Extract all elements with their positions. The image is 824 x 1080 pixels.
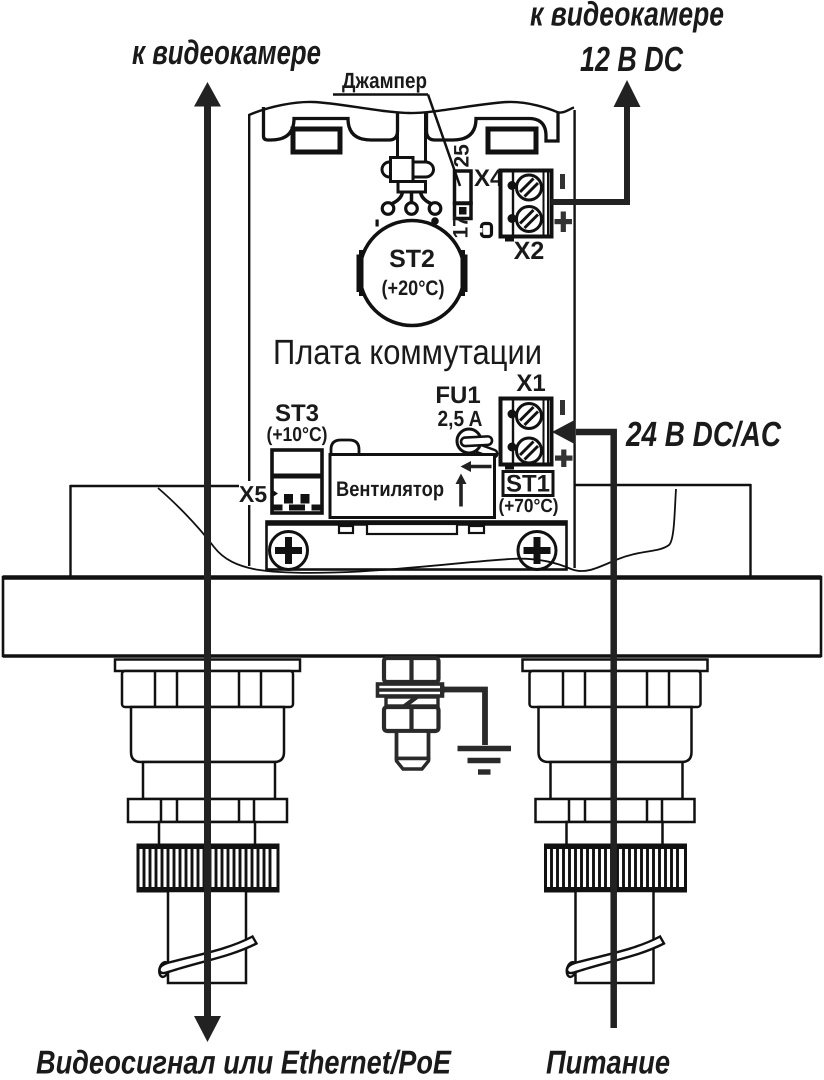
svg-text:25: 25 xyxy=(451,144,474,168)
svg-text:(+10°C): (+10°C) xyxy=(267,424,328,446)
svg-text:X5: X5 xyxy=(239,481,267,507)
svg-text:17: 17 xyxy=(450,215,473,238)
svg-text:(+20°C): (+20°C) xyxy=(382,277,445,300)
svg-text:X1: X1 xyxy=(516,370,545,397)
svg-text:2,5 A: 2,5 A xyxy=(438,406,483,431)
svg-text:к видеокамере: к видеокамере xyxy=(530,0,724,34)
svg-text:ST2: ST2 xyxy=(389,245,435,273)
svg-text:ST1: ST1 xyxy=(506,471,550,498)
svg-text:Видеосигнал или Ethernet/PoE: Видеосигнал или Ethernet/PoE xyxy=(36,1044,452,1080)
svg-text:к видеокамере: к видеокамере xyxy=(132,34,321,72)
svg-text:Питание: Питание xyxy=(546,1044,670,1080)
svg-text:(+70°C): (+70°C) xyxy=(499,496,559,517)
svg-text:X2: X2 xyxy=(514,237,545,265)
svg-text:Вентилятор: Вентилятор xyxy=(336,478,444,501)
svg-text:FU1: FU1 xyxy=(435,382,480,409)
svg-text:Джампер: Джампер xyxy=(342,68,427,93)
svg-text:ST3: ST3 xyxy=(275,400,319,427)
svg-text:Плата коммутации: Плата коммутации xyxy=(273,333,542,372)
svg-text:24 В DC/AC: 24 В DC/AC xyxy=(625,415,781,454)
svg-text:12 В DC: 12 В DC xyxy=(580,40,684,79)
